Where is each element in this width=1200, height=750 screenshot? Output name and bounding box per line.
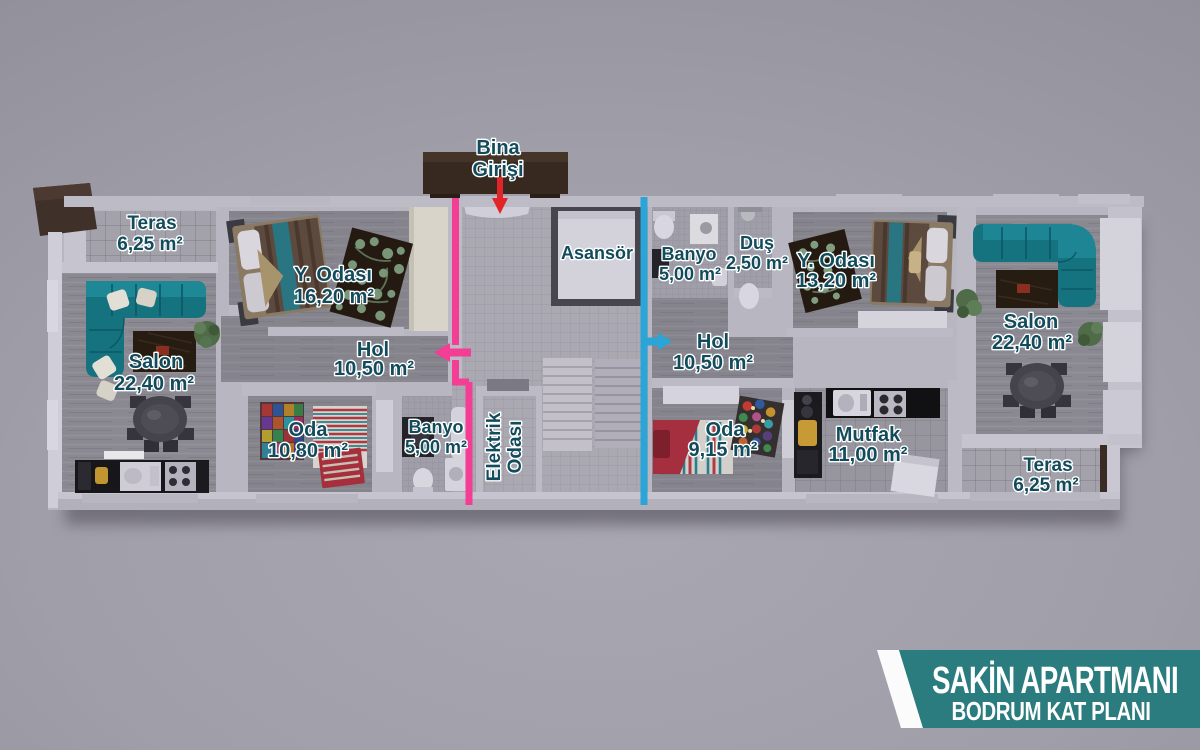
svg-text:10,50 m²: 10,50 m² — [334, 358, 414, 380]
svg-text:Salon: Salon — [1004, 311, 1058, 333]
svg-text:Teras: Teras — [127, 213, 176, 234]
svg-text:Teras: Teras — [1023, 455, 1072, 476]
svg-text:Asansör: Asansör — [561, 243, 633, 263]
svg-text:Elektrik: Elektrik — [484, 412, 505, 481]
svg-text:BODRUM KAT PLANI: BODRUM KAT PLANI — [952, 696, 1151, 726]
svg-text:Odası: Odası — [505, 421, 526, 474]
svg-text:10,50 m²: 10,50 m² — [673, 352, 753, 374]
svg-text:16,20 m²: 16,20 m² — [294, 286, 374, 308]
svg-text:Girişi: Girişi — [472, 159, 523, 181]
svg-text:Hol: Hol — [697, 331, 729, 353]
svg-text:Oda: Oda — [289, 419, 329, 441]
svg-text:10,80 m²: 10,80 m² — [268, 440, 348, 462]
svg-text:Salon: Salon — [129, 351, 183, 373]
svg-text:13,20 m²: 13,20 m² — [796, 270, 876, 292]
svg-text:5,00 m²: 5,00 m² — [405, 437, 467, 457]
svg-text:22,40 m²: 22,40 m² — [114, 373, 194, 395]
svg-text:6,25 m²: 6,25 m² — [1013, 475, 1078, 496]
svg-text:Oda: Oda — [706, 419, 746, 441]
svg-text:9,15 m²: 9,15 m² — [689, 439, 758, 461]
svg-text:Mutfak: Mutfak — [836, 424, 901, 446]
svg-text:Y. Odası: Y. Odası — [294, 264, 372, 286]
svg-text:11,00 m²: 11,00 m² — [829, 444, 908, 466]
svg-text:Bina: Bina — [476, 137, 520, 159]
svg-text:Duş: Duş — [740, 233, 774, 253]
svg-text:2,50 m²: 2,50 m² — [726, 253, 788, 273]
svg-text:Y. Odası: Y. Odası — [797, 250, 875, 272]
svg-text:Banyo: Banyo — [408, 417, 463, 437]
svg-text:Banyo: Banyo — [661, 244, 716, 264]
svg-text:6,25 m²: 6,25 m² — [117, 234, 182, 255]
svg-text:5,00 m²: 5,00 m² — [659, 264, 721, 284]
svg-text:22,40 m²: 22,40 m² — [992, 332, 1072, 354]
